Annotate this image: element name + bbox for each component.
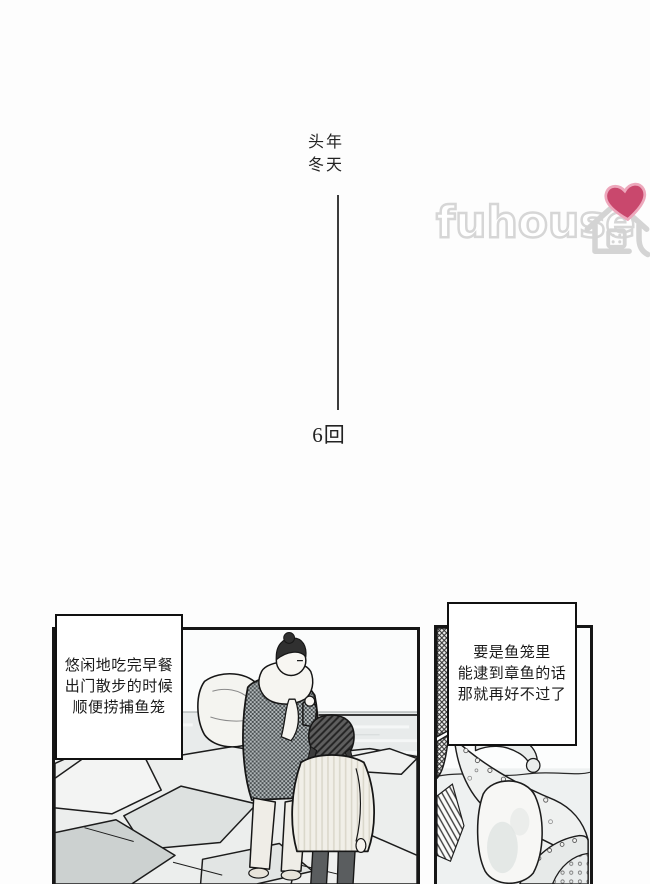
man-hand [305, 696, 315, 706]
manga-page: 头年 冬天 6回 fuhouse [0, 0, 650, 884]
watermark: fuhouse [434, 182, 650, 262]
caption-line: 那就再好不过了 [458, 685, 567, 706]
caption-line: 悠闲地吃完早餐 [65, 656, 174, 677]
caption-line: 顺便捞捕鱼笼 [72, 698, 165, 719]
caption-line: 能逮到章鱼的话 [458, 664, 567, 685]
heart-icon-shape [605, 183, 647, 221]
caption-line: 出门散步的时候 [65, 677, 174, 698]
chapter-title-line2: 冬天 [284, 154, 368, 177]
left-caption-box: 悠闲地吃完早餐 出门散步的时候 顺便捞捕鱼笼 [55, 614, 183, 760]
right-caption-box: 要是鱼笼里 能逮到章鱼的话 那就再好不过了 [447, 602, 577, 746]
chapter-title: 头年 冬天 [284, 131, 368, 177]
heart-icon [604, 182, 648, 222]
woman-coat [292, 755, 374, 851]
man-hair-bun [284, 632, 295, 643]
woman-hand [356, 839, 366, 853]
vertical-divider-line [337, 195, 339, 410]
chapter-title-line1: 头年 [284, 131, 368, 154]
caption-line: 要是鱼笼里 [473, 643, 551, 664]
chapter-number: 6回 [287, 419, 371, 449]
